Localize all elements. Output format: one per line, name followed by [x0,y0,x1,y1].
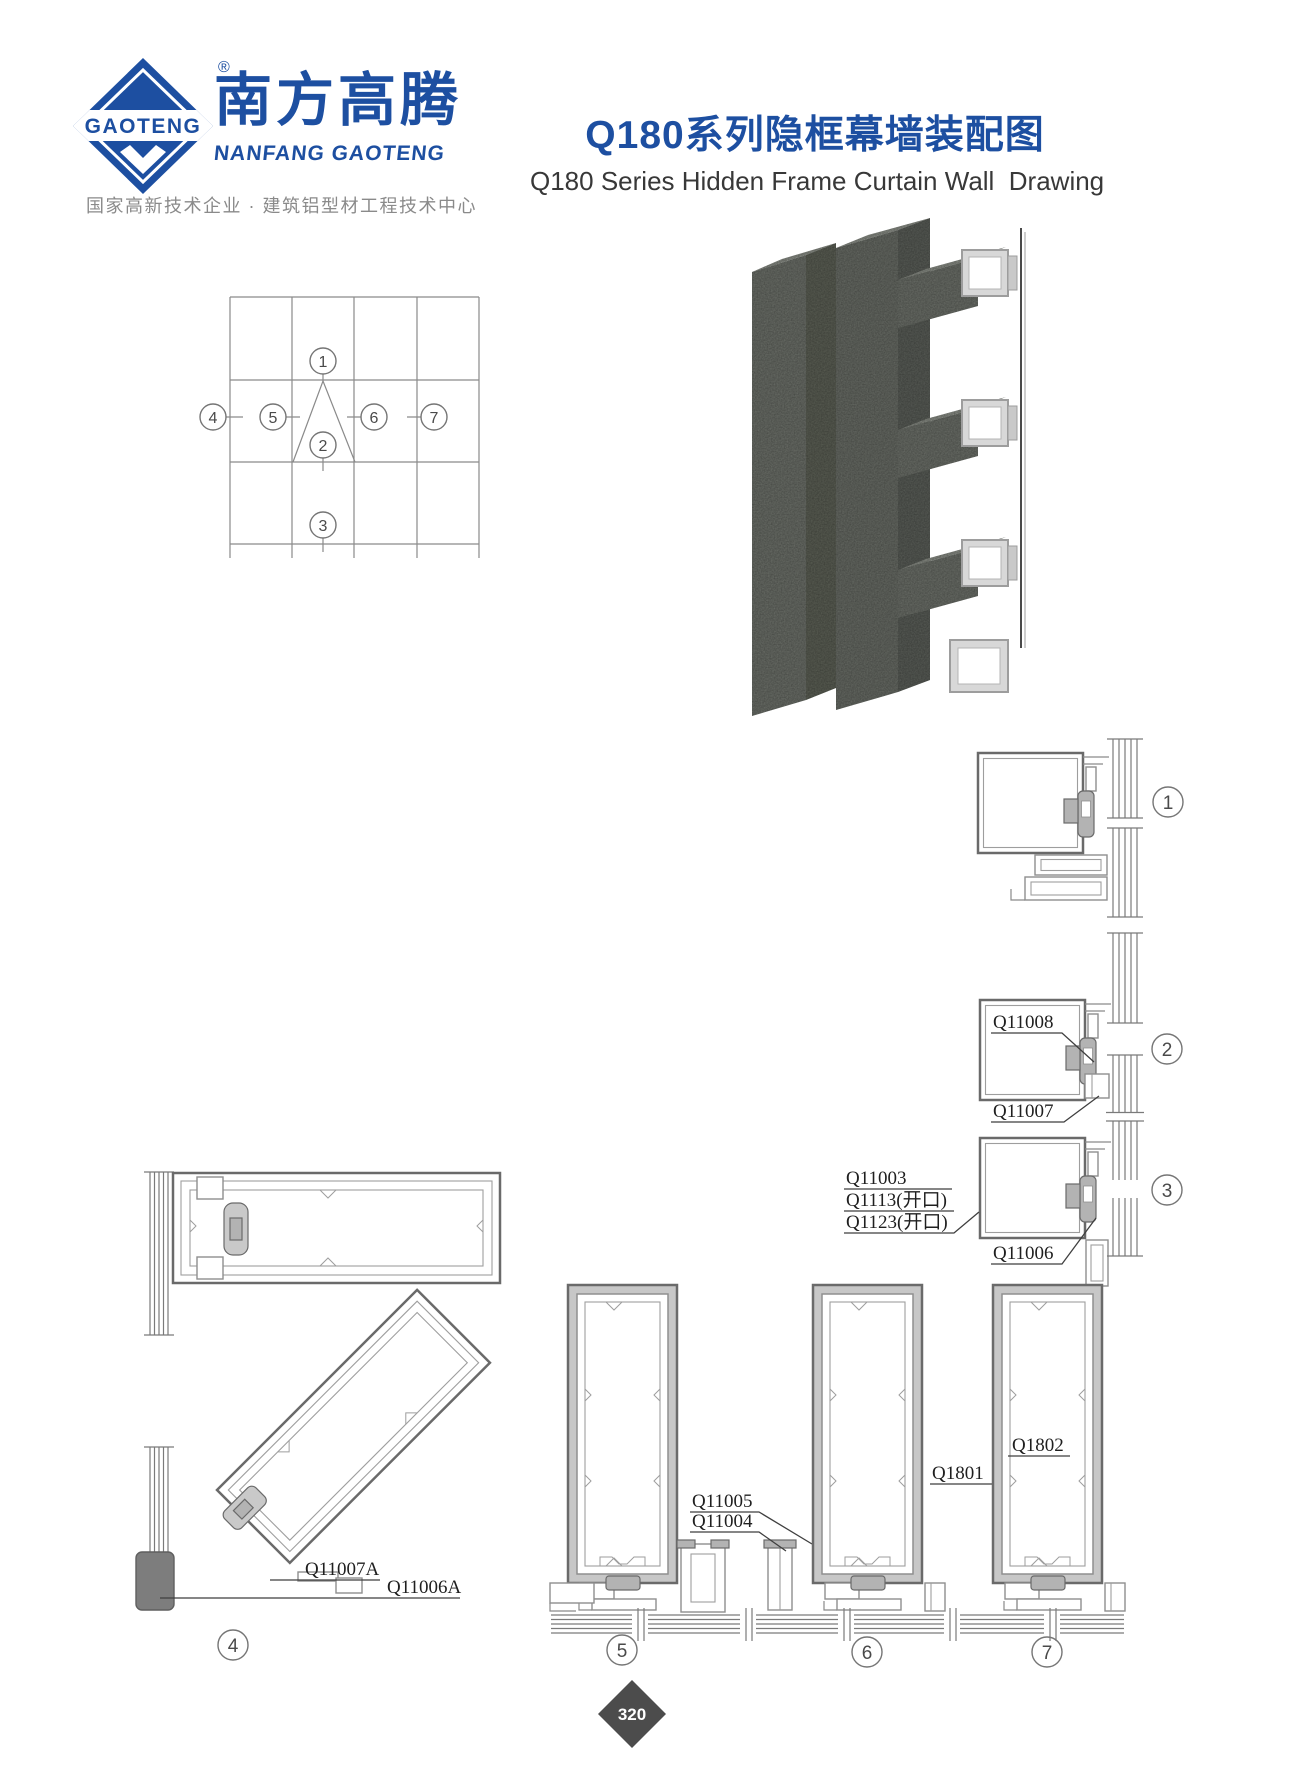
svg-text:2: 2 [1162,1040,1173,1061]
overview-grid: 1 2 3 4 5 6 7 [200,297,479,558]
catalog-page: GAOTENG ® 南方高腾 NANFANG GAOTENG 国家高新技术企业 … [0,0,1300,1775]
part-label-q1802: Q1802 [1012,1435,1064,1456]
part-label-q11003: Q11003 [846,1168,907,1189]
detail-1: 1 [978,739,1183,917]
drawing-canvas: 1 2 3 4 5 6 7 [0,0,1300,1775]
detail-marker-4: 4 [218,1630,248,1660]
render-glass-line [1021,228,1025,648]
part-label-q11004: Q11004 [692,1511,753,1532]
detail-4: Q11007A Q11006A 4 [136,1172,500,1660]
detail-marker-7: 7 [1032,1637,1062,1667]
part-label-q11007a: Q11007A [305,1559,380,1580]
render-3d [752,218,1025,716]
bottom-glass-band [551,1608,1124,1641]
detail-marker-1: 1 [1153,787,1183,817]
svg-text:3: 3 [1162,1181,1173,1202]
render-aluminium-profiles [950,250,1017,692]
page-number-badge: 320 [598,1680,666,1748]
overview-marker-2: 2 [310,432,336,458]
part-label-q11006a: Q11006A [387,1577,462,1598]
detail-7: Q1802 7 [993,1285,1125,1667]
overview-marker-6: 6 [361,404,387,430]
overview-marker-7: 7 [421,404,447,430]
corner-shoe [136,1552,174,1610]
overview-marker-4: 4 [200,404,226,430]
part-label-q11007: Q11007 [993,1101,1054,1122]
part-label-q1801: Q1801 [932,1463,984,1484]
svg-text:5: 5 [269,410,278,427]
svg-text:6: 6 [862,1643,873,1664]
svg-text:4: 4 [209,410,218,427]
part-label-q11005: Q11005 [692,1491,753,1512]
part-label-q1113: Q1113(开口) [846,1190,947,1211]
detail-marker-3: 3 [1152,1175,1182,1205]
detail-marker-2: 2 [1152,1034,1182,1064]
overview-marker-5: 5 [260,404,286,430]
svg-text:1: 1 [1163,793,1174,814]
svg-text:2: 2 [319,438,328,455]
svg-text:1: 1 [319,354,328,371]
part-label-q1123: Q1123(开口) [846,1212,948,1233]
part-label-q11008: Q11008 [993,1012,1054,1033]
svg-text:5: 5 [617,1641,628,1662]
svg-text:3: 3 [319,518,328,535]
svg-text:4: 4 [228,1636,239,1657]
detail-5: Q11005 Q11004 5 [550,1285,812,1665]
page-number: 320 [618,1705,646,1724]
svg-text:6: 6 [370,410,379,427]
svg-text:7: 7 [1042,1643,1053,1664]
overview-marker-3: 3 [310,512,336,538]
overview-marker-1: 1 [310,348,336,374]
detail-6: Q1801 6 [813,1285,994,1667]
part-label-q11006: Q11006 [993,1243,1054,1264]
detail-marker-5: 5 [607,1635,637,1665]
detail-marker-6: 6 [852,1637,882,1667]
svg-text:7: 7 [430,410,439,427]
